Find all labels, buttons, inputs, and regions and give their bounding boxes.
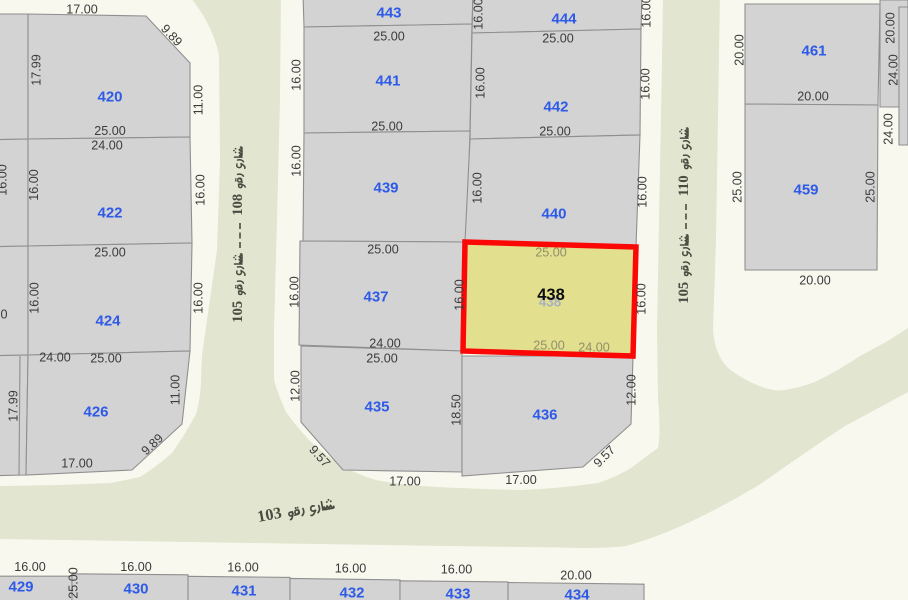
svg-text:438: 438 [537, 286, 565, 304]
svg-text:16.00: 16.00 [14, 560, 46, 574]
svg-text:20.00: 20.00 [733, 34, 747, 66]
svg-text:16.00: 16.00 [288, 276, 302, 308]
svg-text:16.00: 16.00 [192, 282, 206, 314]
svg-text:422: 422 [97, 205, 122, 222]
svg-text:17.99: 17.99 [30, 54, 44, 86]
svg-text:25.00: 25.00 [67, 567, 81, 599]
svg-text:16.00: 16.00 [636, 176, 650, 208]
svg-text:20.00: 20.00 [884, 12, 898, 44]
svg-text:25.00: 25.00 [367, 243, 399, 257]
svg-text:16.00: 16.00 [472, 0, 486, 30]
svg-text:24.00: 24.00 [369, 337, 401, 351]
svg-text:439: 439 [373, 180, 398, 197]
svg-text:431: 431 [231, 583, 256, 600]
svg-text:20.00: 20.00 [560, 569, 592, 583]
svg-text:20.00: 20.00 [797, 90, 829, 104]
svg-text:434: 434 [564, 587, 590, 600]
svg-text:432: 432 [339, 585, 364, 600]
svg-text:16.00: 16.00 [290, 145, 304, 177]
svg-text:437: 437 [363, 289, 388, 306]
svg-text:16.00: 16.00 [194, 174, 208, 206]
svg-text:24.00: 24.00 [578, 341, 610, 355]
svg-text:426: 426 [83, 404, 108, 421]
svg-text:442: 442 [543, 99, 568, 116]
svg-text:25.00: 25.00 [864, 171, 878, 203]
svg-text:25.00: 25.00 [366, 352, 398, 366]
svg-text:16.00: 16.00 [290, 59, 304, 91]
svg-text:443: 443 [376, 5, 401, 22]
svg-text:25.00: 25.00 [94, 246, 126, 260]
svg-text:16.00: 16.00 [0, 164, 10, 196]
svg-text:11.00: 11.00 [169, 375, 183, 406]
svg-text:25.00: 25.00 [539, 125, 571, 139]
svg-text:17.99: 17.99 [7, 390, 21, 422]
svg-text:16.00: 16.00 [639, 68, 653, 100]
svg-text:24.00: 24.00 [882, 113, 896, 145]
svg-text:430: 430 [123, 581, 148, 598]
svg-text:16.00: 16.00 [335, 562, 367, 576]
svg-text:12.00: 12.00 [289, 370, 303, 402]
svg-text:16.00: 16.00 [441, 563, 473, 577]
svg-text:16.00: 16.00 [453, 279, 467, 311]
svg-text:435: 435 [364, 399, 389, 416]
svg-text:420: 420 [97, 89, 122, 106]
svg-text:18.50: 18.50 [450, 394, 464, 426]
svg-text:433: 433 [445, 586, 470, 600]
svg-text:20.00: 20.00 [799, 274, 831, 288]
svg-text:16.00: 16.00 [640, 0, 654, 28]
svg-text:424: 424 [95, 313, 121, 330]
svg-text:16.00: 16.00 [471, 172, 485, 204]
svg-text:17.00: 17.00 [61, 457, 93, 471]
svg-text:461: 461 [801, 43, 826, 60]
svg-text:16.00: 16.00 [120, 560, 152, 574]
svg-text:16.00: 16.00 [227, 561, 259, 575]
svg-text:110: 110 [676, 175, 692, 196]
svg-text:17.00: 17.00 [66, 3, 98, 17]
svg-text:444: 444 [551, 11, 577, 28]
svg-text:0: 0 [0, 308, 7, 322]
svg-text:25.00: 25.00 [731, 171, 745, 203]
svg-text:24.00: 24.00 [887, 54, 901, 86]
svg-text:25.00: 25.00 [542, 32, 574, 46]
svg-text:17.00: 17.00 [505, 473, 537, 487]
svg-text:16.00: 16.00 [27, 169, 41, 201]
svg-text:17.00: 17.00 [389, 475, 421, 489]
svg-text:108: 108 [230, 194, 246, 216]
svg-text:24.00: 24.00 [91, 139, 123, 153]
svg-text:25.00: 25.00 [373, 30, 405, 44]
svg-text:25.00: 25.00 [371, 120, 403, 134]
svg-text:429: 429 [8, 579, 33, 596]
svg-text:459: 459 [793, 182, 818, 199]
svg-text:105: 105 [676, 282, 692, 304]
svg-text:436: 436 [532, 407, 557, 424]
svg-text:440: 440 [541, 206, 566, 223]
svg-text:25.00: 25.00 [533, 339, 565, 353]
svg-text:25.00: 25.00 [90, 352, 122, 366]
svg-text:16.00: 16.00 [28, 282, 42, 314]
svg-text:16.00: 16.00 [474, 67, 488, 99]
svg-text:16.00: 16.00 [635, 283, 649, 315]
svg-text:105: 105 [230, 301, 246, 323]
svg-text:441: 441 [375, 73, 400, 90]
svg-text:11.00: 11.00 [192, 85, 206, 116]
svg-text:25.00: 25.00 [535, 246, 567, 260]
svg-text:24.00: 24.00 [39, 351, 71, 365]
svg-text:12.00: 12.00 [625, 374, 639, 406]
svg-text:25.00: 25.00 [94, 124, 126, 138]
